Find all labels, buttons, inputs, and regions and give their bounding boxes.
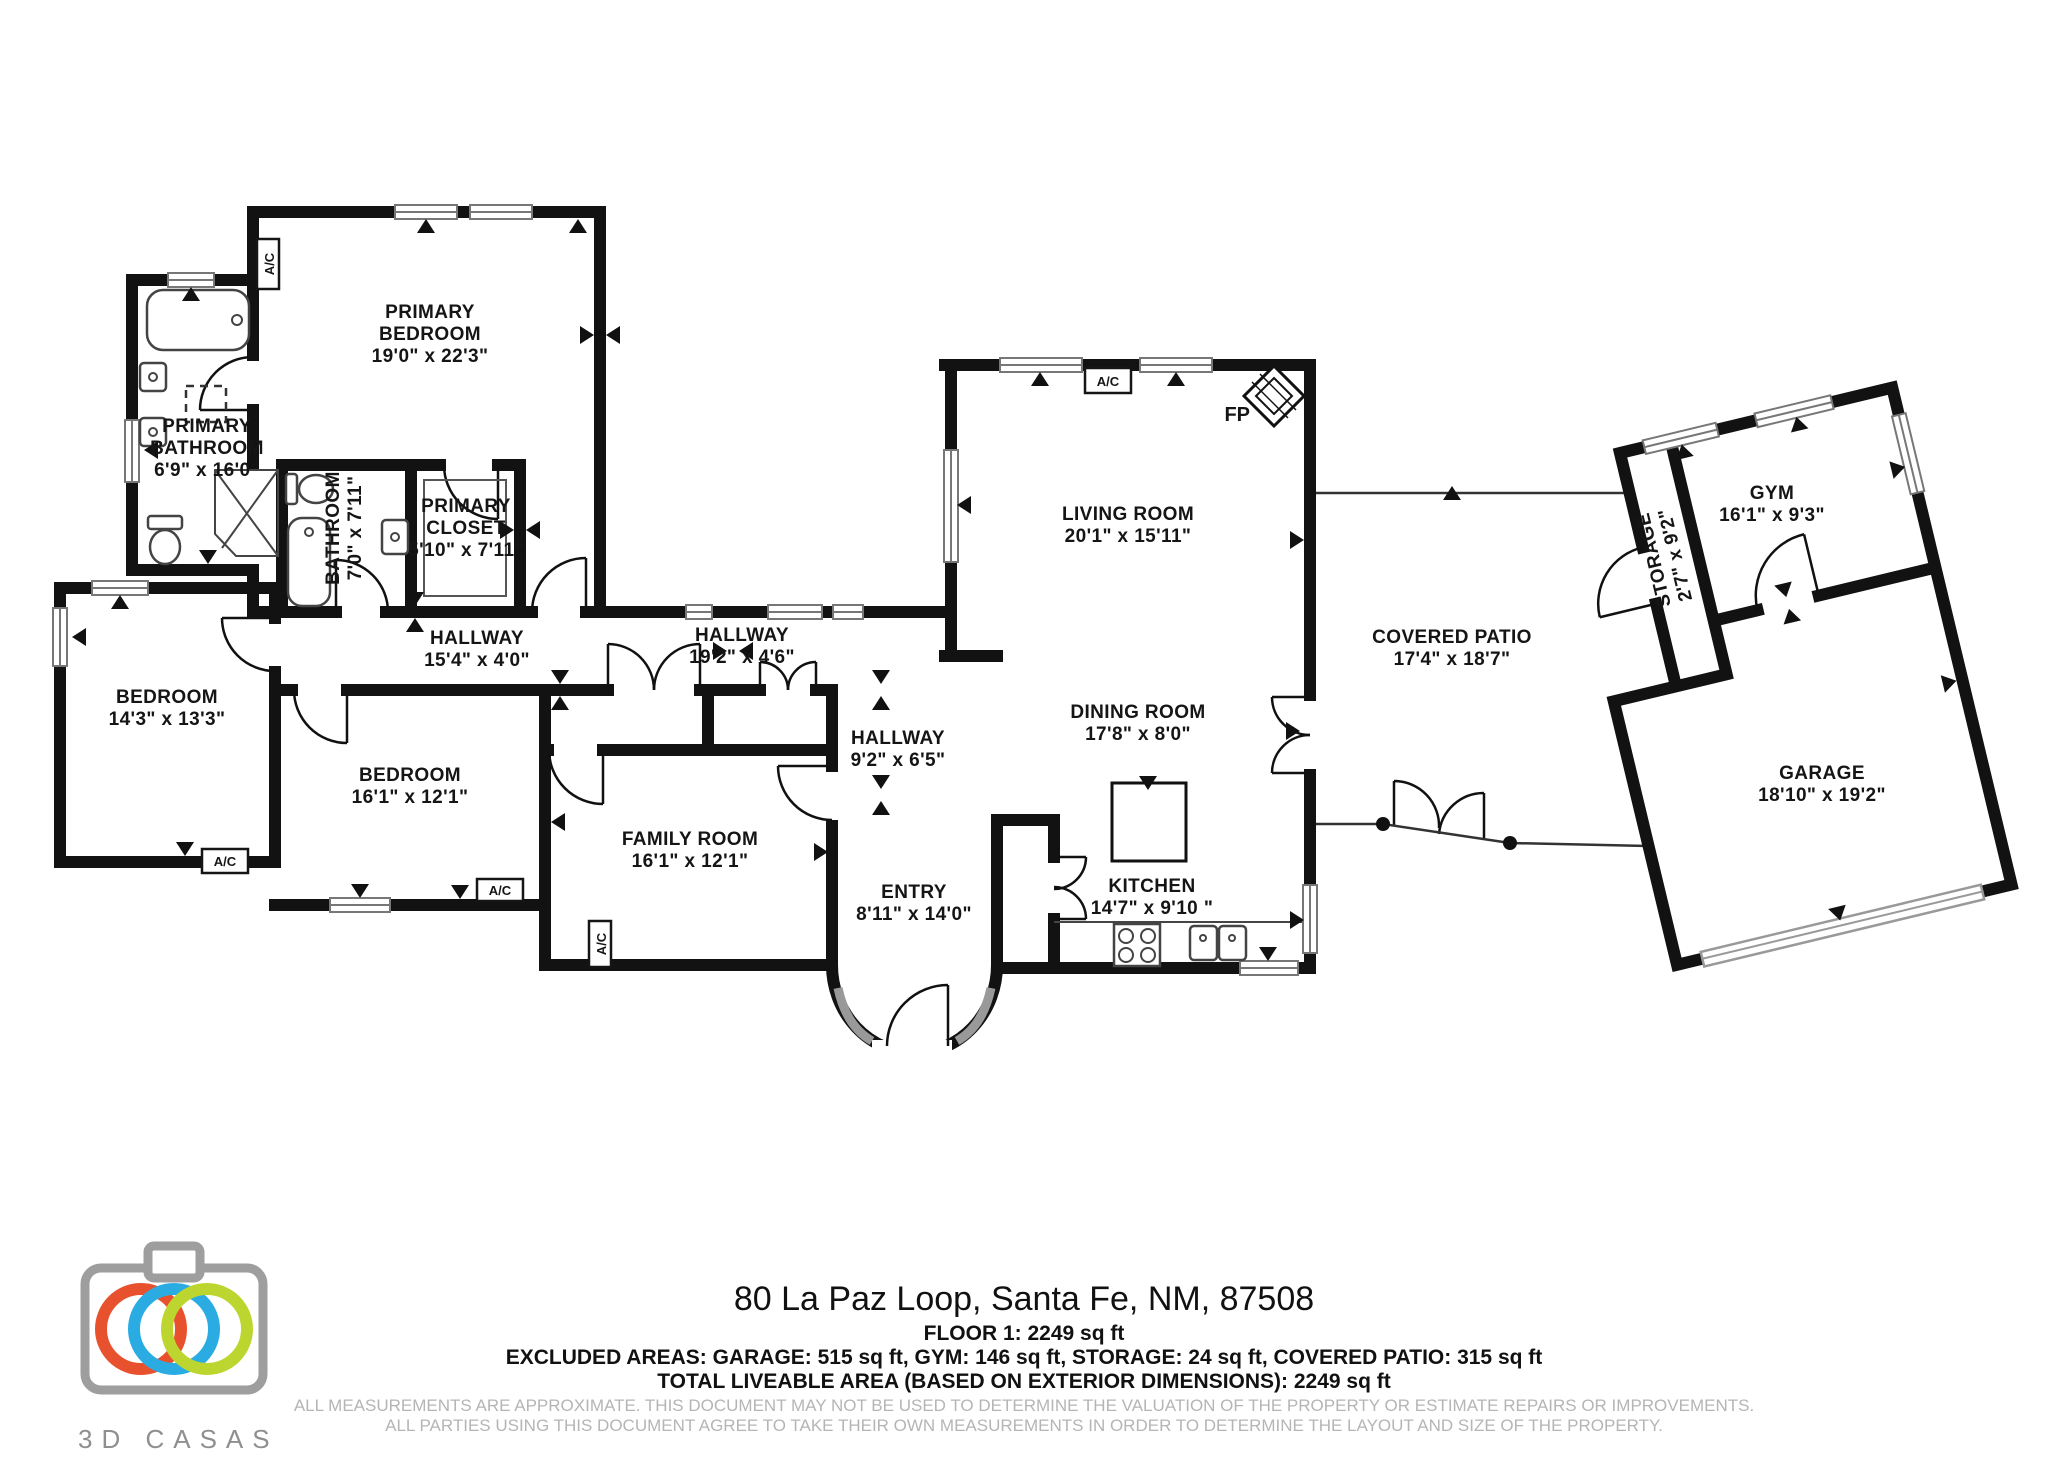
- svg-text:HALLWAY: HALLWAY: [430, 628, 524, 649]
- room-label-entry: ENTRY 8'11" x 14'0": [856, 882, 972, 925]
- svg-text:15'4" x 4'0": 15'4" x 4'0": [424, 650, 530, 671]
- svg-text:7'0" x 7'11": 7'0" x 7'11": [345, 476, 366, 581]
- svg-text:A/C: A/C: [489, 883, 512, 898]
- svg-text:BEDROOM: BEDROOM: [359, 765, 461, 786]
- room-label-primary-bedroom: PRIMARY BEDROOM 19'0" x 22'3": [372, 302, 489, 367]
- fireplace-icon: [1244, 366, 1304, 426]
- svg-text:14'3" x 13'3": 14'3" x 13'3": [109, 709, 226, 730]
- svg-text:A/C: A/C: [1097, 374, 1120, 389]
- room-label-covered-patio: COVERED PATIO 17'4" x 18'7": [1372, 627, 1532, 670]
- svg-text:9'2" x 6'5": 9'2" x 6'5": [851, 750, 946, 771]
- svg-text:16'1" x 12'1": 16'1" x 12'1": [352, 787, 469, 808]
- svg-text:PRIMARY: PRIMARY: [421, 496, 511, 517]
- patio-boundary: [1316, 493, 1648, 850]
- svg-text:16'1" x 9'3": 16'1" x 9'3": [1719, 505, 1825, 526]
- svg-text:A/C: A/C: [594, 932, 609, 955]
- room-label-primary-bathroom: PRIMARY BATHROOM 6'9" x 16'0": [150, 416, 264, 481]
- svg-text:18'10" x 19'2": 18'10" x 19'2": [1758, 785, 1886, 806]
- svg-text:PRIMARY: PRIMARY: [162, 416, 252, 437]
- room-label-living-room: LIVING ROOM 20'1" x 15'11": [1062, 504, 1194, 547]
- disclaimer-line-1: ALL MEASUREMENTS ARE APPROXIMATE. THIS D…: [0, 1396, 2048, 1416]
- bay-window: [838, 988, 872, 1041]
- svg-text:GYM: GYM: [1750, 483, 1794, 504]
- svg-text:17'4" x 18'7": 17'4" x 18'7": [1394, 649, 1511, 670]
- room-label-bathroom: BATHROOM 7'0" x 7'11": [323, 471, 366, 585]
- svg-text:COVERED PATIO: COVERED PATIO: [1372, 627, 1532, 648]
- svg-text:FAMILY ROOM: FAMILY ROOM: [622, 829, 758, 850]
- svg-text:5'10" x 7'11": 5'10" x 7'11": [408, 540, 524, 561]
- floorplan-canvas: STORAGE 2'7" x 9'2": [0, 0, 2048, 1449]
- camera-bump-icon: [148, 1246, 200, 1278]
- svg-text:BEDROOM: BEDROOM: [116, 687, 218, 708]
- svg-text:14'7" x 9'10 ": 14'7" x 9'10 ": [1091, 898, 1213, 919]
- room-label-bedroom-mid: BEDROOM 16'1" x 12'1": [352, 765, 469, 808]
- bay-window: [957, 988, 991, 1041]
- svg-text:HALLWAY: HALLWAY: [851, 728, 945, 749]
- room-label-gym: GYM 16'1" x 9'3": [1719, 483, 1825, 526]
- stove-icon: [1114, 924, 1160, 966]
- svg-text:HALLWAY: HALLWAY: [695, 625, 789, 646]
- room-label-kitchen: KITCHEN 14'7" x 9'10 ": [1091, 876, 1213, 919]
- address-title: 80 La Paz Loop, Santa Fe, NM, 87508: [0, 1280, 2048, 1319]
- svg-text:PRIMARY: PRIMARY: [385, 302, 475, 323]
- svg-text:20'1" x 15'11": 20'1" x 15'11": [1065, 526, 1192, 547]
- sink-icon: [382, 520, 408, 554]
- excluded-areas-line: EXCLUDED AREAS: GARAGE: 515 sq ft, GYM: …: [0, 1346, 2048, 1370]
- patio-post: [1376, 817, 1390, 831]
- toilet-icon: [148, 516, 182, 564]
- kitchen-island: [1112, 783, 1186, 861]
- svg-text:A/C: A/C: [214, 854, 237, 869]
- garage-door: [1701, 885, 1985, 967]
- total-area-line: TOTAL LIVEABLE AREA (BASED ON EXTERIOR D…: [0, 1370, 2048, 1394]
- floor-area-line: FLOOR 1: 2249 sq ft: [0, 1322, 2048, 1346]
- patio-post: [1503, 836, 1517, 850]
- kitchen-sink-icon: [1190, 926, 1246, 960]
- svg-text:BEDROOM: BEDROOM: [379, 324, 481, 345]
- svg-text:19'2" x 4'6": 19'2" x 4'6": [689, 647, 795, 668]
- svg-text:8'11" x 14'0": 8'11" x 14'0": [856, 904, 972, 925]
- room-label-hallway-south: HALLWAY 9'2" x 6'5": [851, 728, 946, 771]
- svg-text:DINING ROOM: DINING ROOM: [1070, 702, 1205, 723]
- disclaimer-line-2: ALL PARTIES USING THIS DOCUMENT AGREE TO…: [0, 1416, 2048, 1436]
- sink-icon: [140, 363, 166, 391]
- room-label-bedroom-west: BEDROOM 14'3" x 13'3": [109, 687, 226, 730]
- svg-text:KITCHEN: KITCHEN: [1108, 876, 1195, 897]
- room-label-hallway-east: HALLWAY 19'2" x 4'6": [689, 625, 795, 668]
- garage-wing: STORAGE 2'7" x 9'2": [1556, 379, 2020, 972]
- svg-text:BATHROOM: BATHROOM: [323, 471, 344, 585]
- svg-text:17'8" x 8'0": 17'8" x 8'0": [1085, 724, 1191, 745]
- svg-text:A/C: A/C: [262, 252, 277, 275]
- svg-text:ENTRY: ENTRY: [881, 882, 947, 903]
- svg-text:GARAGE: GARAGE: [1779, 763, 1865, 784]
- svg-text:19'0" x 22'3": 19'0" x 22'3": [372, 346, 489, 367]
- svg-text:CLOSET: CLOSET: [426, 518, 505, 539]
- fireplace-label: FP: [1224, 404, 1250, 426]
- svg-text:LIVING ROOM: LIVING ROOM: [1062, 504, 1194, 525]
- entry-bay-wall: [832, 965, 997, 1053]
- svg-text:16'1" x 12'1": 16'1" x 12'1": [632, 851, 749, 872]
- shower-icon: [215, 470, 278, 556]
- room-label-family-room: FAMILY ROOM 16'1" x 12'1": [622, 829, 758, 872]
- room-label-hallway-west: HALLWAY 15'4" x 4'0": [424, 628, 530, 671]
- room-label-garage: GARAGE 18'10" x 19'2": [1758, 763, 1886, 806]
- svg-text:6'9" x 16'0": 6'9" x 16'0": [154, 460, 260, 481]
- room-label-dining-room: DINING ROOM 17'8" x 8'0": [1070, 702, 1205, 745]
- svg-text:BATHROOM: BATHROOM: [150, 438, 264, 459]
